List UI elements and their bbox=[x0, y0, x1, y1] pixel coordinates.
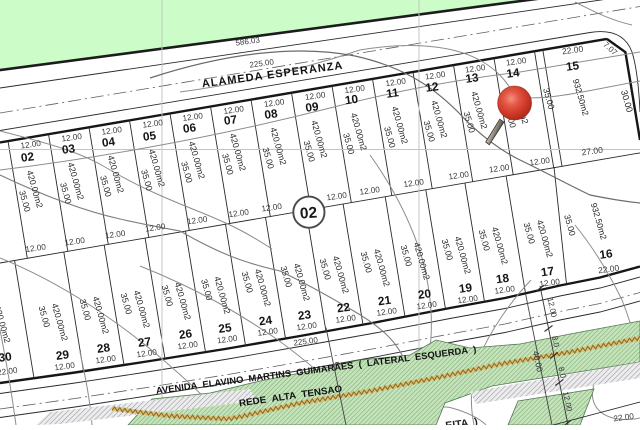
svg-text:02: 02 bbox=[20, 149, 35, 165]
svg-text:27: 27 bbox=[137, 334, 152, 350]
svg-text:22: 22 bbox=[336, 300, 351, 316]
svg-text:24: 24 bbox=[258, 313, 273, 329]
svg-text:03: 03 bbox=[61, 141, 76, 157]
svg-text:05: 05 bbox=[142, 128, 157, 144]
svg-text:25: 25 bbox=[218, 320, 233, 336]
svg-text:14: 14 bbox=[506, 65, 521, 81]
svg-text:17: 17 bbox=[540, 264, 555, 280]
svg-text:16: 16 bbox=[599, 246, 614, 262]
svg-text:02: 02 bbox=[299, 204, 317, 222]
svg-text:12: 12 bbox=[425, 79, 440, 95]
svg-text:15: 15 bbox=[565, 58, 580, 74]
svg-text:20: 20 bbox=[417, 286, 432, 302]
svg-text:18: 18 bbox=[495, 271, 510, 287]
svg-text:28: 28 bbox=[96, 340, 111, 356]
svg-text:23: 23 bbox=[297, 307, 312, 323]
svg-text:21: 21 bbox=[377, 293, 392, 309]
svg-text:29: 29 bbox=[55, 347, 70, 363]
svg-text:26: 26 bbox=[178, 326, 193, 342]
svg-text:19: 19 bbox=[458, 280, 473, 296]
